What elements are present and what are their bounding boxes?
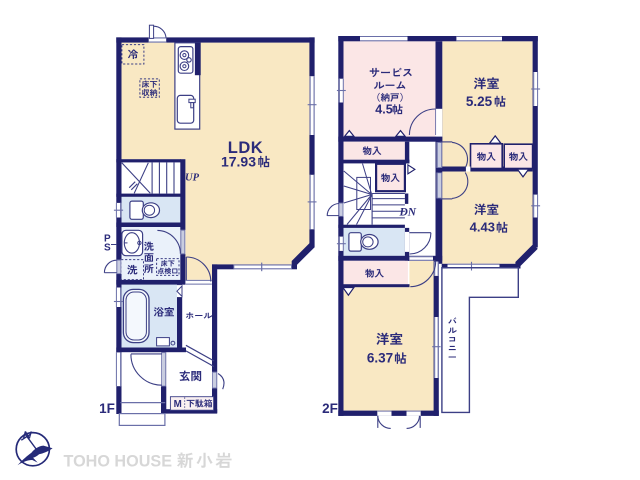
- svg-text:DN: DN: [399, 206, 417, 218]
- svg-text:6.37: 6.37: [367, 351, 393, 366]
- svg-text:UP: UP: [185, 173, 200, 184]
- svg-text:2F: 2F: [322, 401, 338, 416]
- svg-text:TOHO HOUSE: TOHO HOUSE: [64, 452, 173, 470]
- svg-text:S: S: [104, 243, 111, 254]
- svg-text:1F: 1F: [99, 401, 115, 416]
- svg-text:M: M: [174, 399, 182, 410]
- svg-text:17.93: 17.93: [221, 153, 256, 169]
- svg-text:5.25: 5.25: [466, 94, 493, 109]
- svg-text:4.43: 4.43: [470, 220, 495, 235]
- svg-text:4.5: 4.5: [375, 102, 392, 116]
